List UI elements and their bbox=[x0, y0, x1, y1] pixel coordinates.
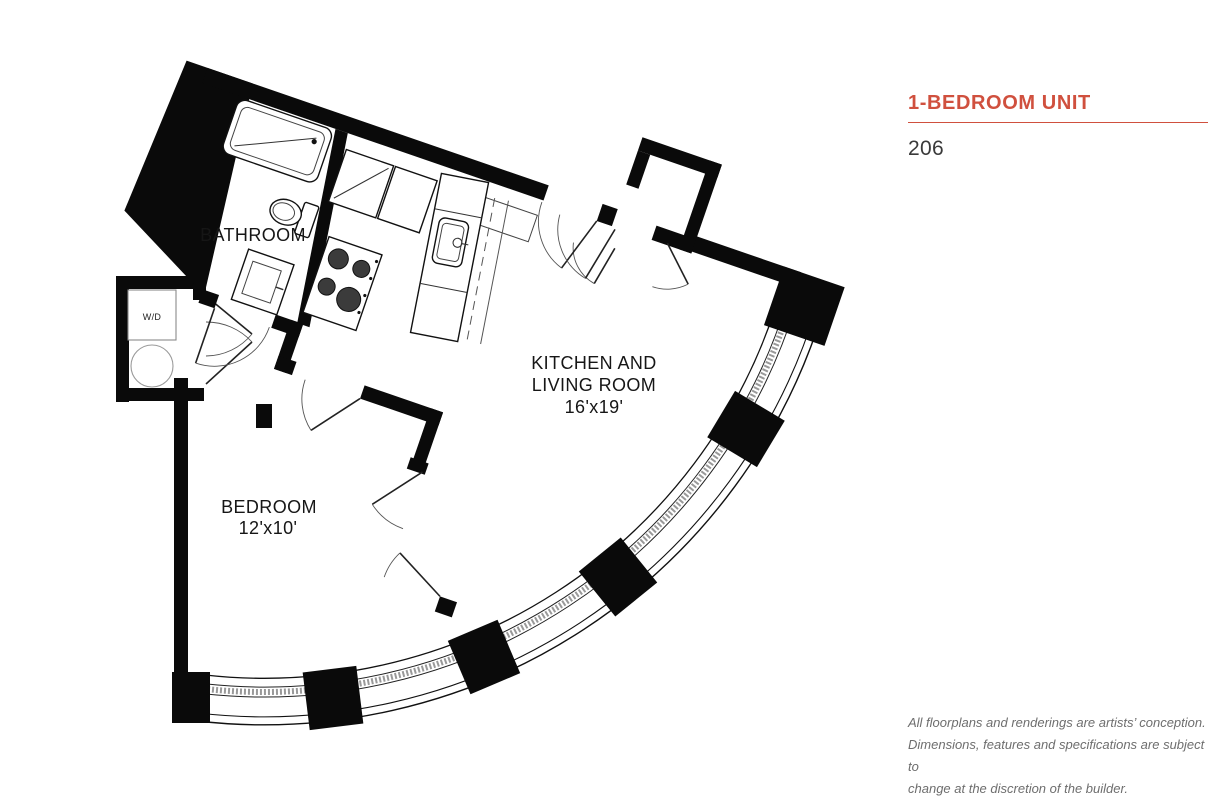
entry-vestibule bbox=[563, 127, 728, 312]
left-exterior-wall bbox=[174, 378, 188, 723]
kitchen-door-leaf bbox=[562, 215, 597, 274]
unit-type-title: 1-BEDROOM UNIT bbox=[908, 92, 1208, 123]
disclaimer-line: All floorplans and renderings are artist… bbox=[908, 712, 1218, 734]
bedroom-wall bbox=[216, 356, 514, 618]
wall-stub bbox=[256, 404, 272, 428]
bathroom-label: BATHROOM bbox=[200, 225, 306, 245]
closet-door-leaf bbox=[206, 342, 252, 384]
disclaimer-text: All floorplans and renderings are artist… bbox=[908, 712, 1218, 800]
window-pillar bbox=[579, 537, 657, 616]
unit-interior bbox=[34, 0, 870, 703]
bedroom-door-leaf bbox=[311, 387, 360, 442]
water-heater bbox=[131, 345, 173, 387]
unit-number: 206 bbox=[908, 137, 1208, 161]
kitchen-living-dimensions: 16'x19' bbox=[565, 397, 624, 417]
kitchen-living-label-line2: LIVING ROOM bbox=[532, 375, 656, 395]
bedroom-double-door-leaf bbox=[391, 553, 449, 596]
bathroom-vanity bbox=[231, 249, 294, 315]
bedroom-dimensions: 12'x10' bbox=[239, 518, 298, 538]
bedroom-label: BEDROOM bbox=[221, 497, 317, 517]
disclaimer-line: change at the discretion of the builder. bbox=[908, 778, 1218, 800]
disclaimer-line: Dimensions, features and specifications … bbox=[908, 734, 1218, 778]
info-panel: 1-BEDROOM UNIT 206 bbox=[908, 92, 1208, 161]
kitchen-living-label-line1: KITCHEN AND bbox=[531, 353, 656, 373]
window-pillar bbox=[707, 391, 785, 467]
bathroom-door-leaf bbox=[196, 308, 215, 363]
window-pillar bbox=[303, 666, 364, 730]
entry-door-leaf bbox=[594, 246, 615, 286]
laundry-label: W/D bbox=[143, 312, 162, 322]
